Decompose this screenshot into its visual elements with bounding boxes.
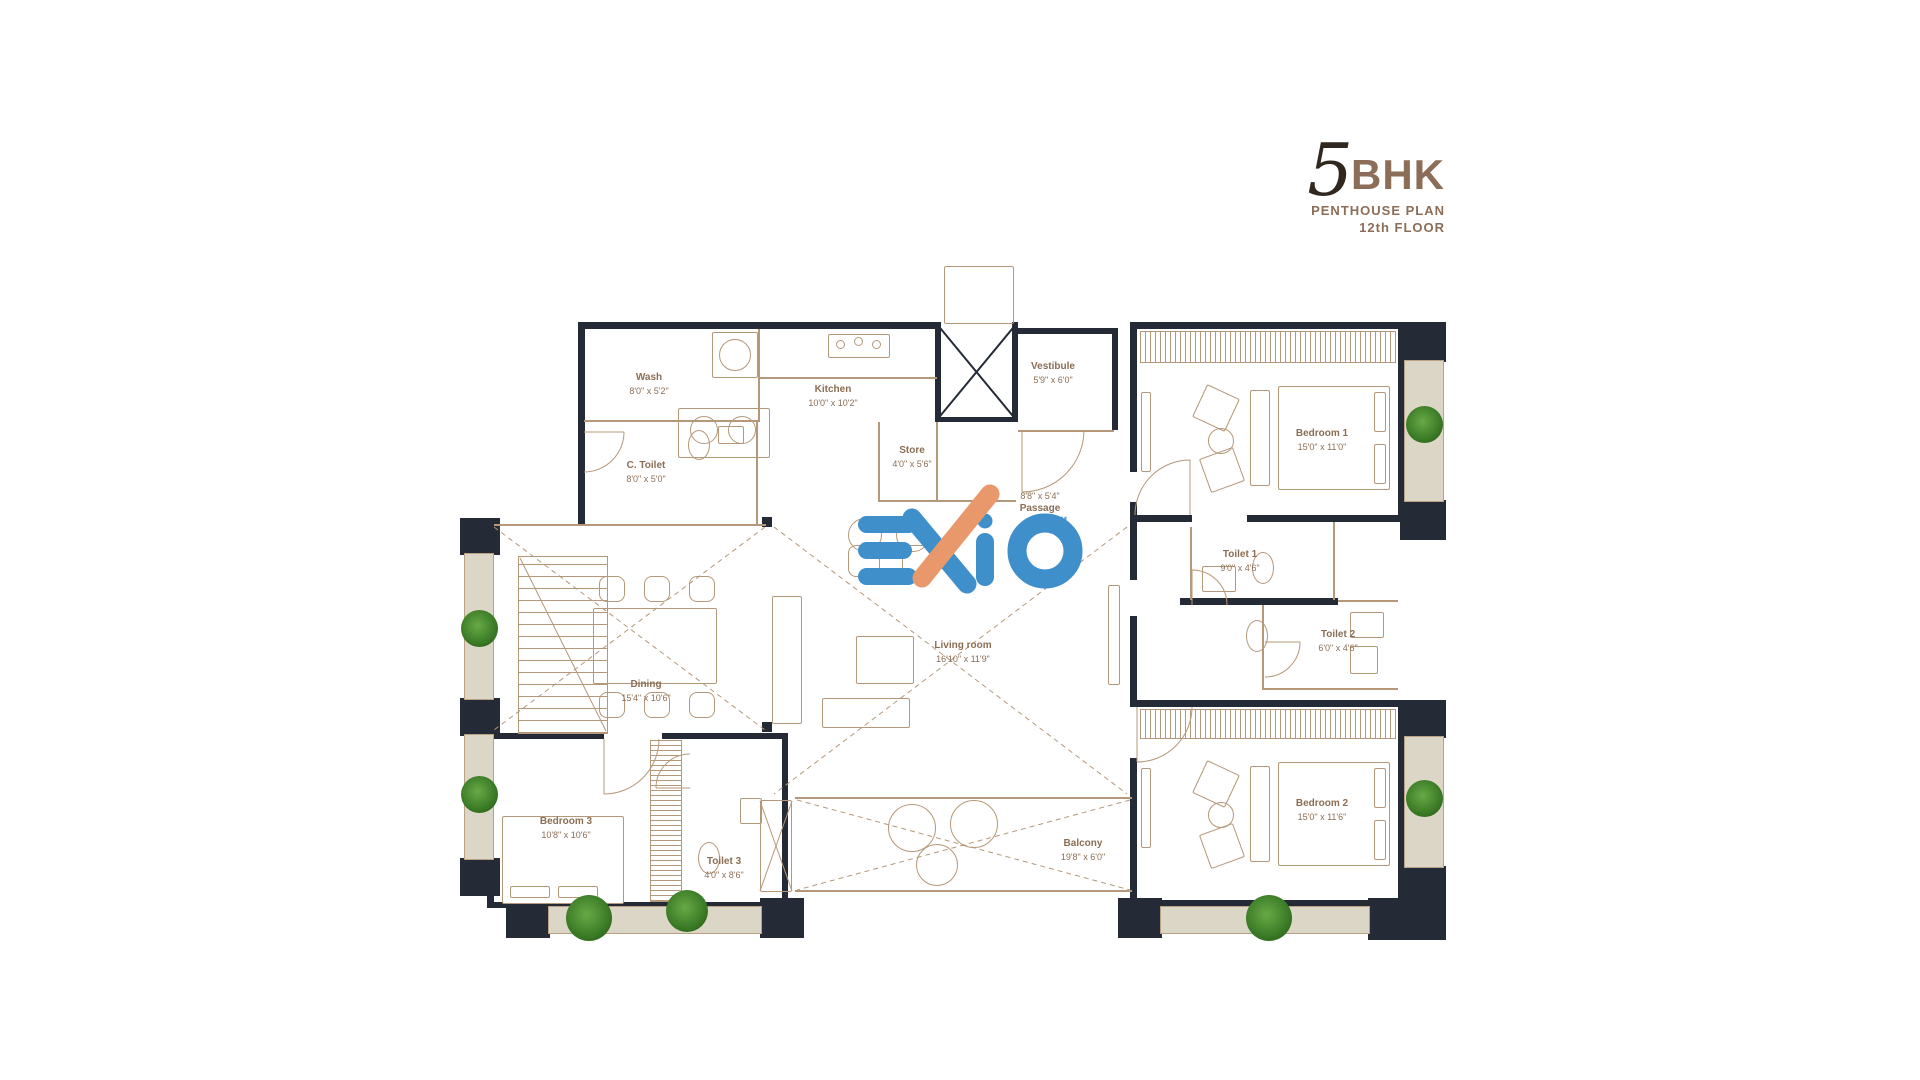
plan-title-line1: PENTHOUSE PLAN xyxy=(1300,203,1445,218)
wardrobe-hatch xyxy=(650,740,682,902)
room-dims: 15'4" x 10'6" xyxy=(621,692,670,704)
wall xyxy=(662,733,788,739)
wall xyxy=(935,322,941,422)
room-name: Toilet 3 xyxy=(707,856,741,867)
exio-logo: ™ xyxy=(845,483,1095,603)
partition xyxy=(1333,522,1335,600)
plant-icon xyxy=(1406,406,1443,443)
plant-icon xyxy=(666,890,708,932)
room-name: Store xyxy=(899,445,925,456)
armchair xyxy=(1199,823,1245,869)
plant-icon xyxy=(461,610,498,647)
partition xyxy=(494,524,766,526)
room-name: Wash xyxy=(636,372,662,383)
room-label-toilet-1: Toilet 19'0" x 4'6" xyxy=(1220,548,1259,574)
partition xyxy=(1338,600,1398,602)
plan-title-number: 5 xyxy=(1307,128,1351,212)
column xyxy=(1400,700,1446,738)
room-label-bedroom-1: Bedroom 115'0" x 11'0" xyxy=(1296,427,1348,453)
room-name: Toilet 2 xyxy=(1321,629,1355,640)
room-dims: 5'9" x 6'0" xyxy=(1031,374,1075,386)
burner xyxy=(872,340,881,349)
column xyxy=(1400,500,1446,540)
wall xyxy=(935,417,1018,422)
pillow xyxy=(1374,444,1386,484)
wc xyxy=(1246,620,1268,652)
bench xyxy=(1250,766,1270,862)
room-dims: 9'0" x 4'6" xyxy=(1220,562,1259,574)
planter xyxy=(950,800,998,848)
armchair xyxy=(1192,760,1240,808)
room-dims: 4'0" x 8'6" xyxy=(704,869,743,881)
partition xyxy=(795,890,1132,892)
wall xyxy=(1112,334,1118,430)
burner xyxy=(836,340,845,349)
wc xyxy=(688,430,710,460)
armchair xyxy=(1192,384,1240,432)
room-name: Toilet 1 xyxy=(1223,549,1257,560)
shaft-x-brace xyxy=(936,323,1017,421)
wall xyxy=(1130,758,1137,907)
pillow xyxy=(1374,820,1386,860)
room-label-bedroom-2: Bedroom 215'0" x 11'6" xyxy=(1296,797,1348,823)
room-dims: 8'0" x 5'2" xyxy=(629,385,668,397)
room-name: Bedroom 3 xyxy=(540,816,592,827)
wall xyxy=(1130,616,1137,707)
pillow xyxy=(510,886,550,898)
room-label-toilet-2: Toilet 26'0" x 4'6" xyxy=(1318,628,1357,654)
o-ring xyxy=(1017,523,1073,579)
room-name: Vestibule xyxy=(1031,361,1075,372)
partition xyxy=(1262,688,1398,690)
room-dims: 19'8" x 6'0" xyxy=(1061,851,1105,863)
column xyxy=(460,698,500,736)
room-label-dining: Dining15'4" x 10'6" xyxy=(621,678,670,704)
room-name: Living room xyxy=(934,640,991,651)
room-name: Kitchen xyxy=(815,384,852,395)
room-dims: 15'0" x 11'6" xyxy=(1296,811,1348,823)
column xyxy=(506,898,550,938)
plan-title-line2: 12th FLOOR xyxy=(1300,220,1445,235)
column xyxy=(460,858,500,896)
tv-panel xyxy=(1141,392,1151,472)
wall xyxy=(1012,328,1118,334)
plan-title-main: 5BHK xyxy=(1300,140,1445,201)
wall xyxy=(578,322,938,329)
partition xyxy=(795,797,1132,799)
room-dims: 8'0" x 5'0" xyxy=(626,473,665,485)
wall xyxy=(1247,515,1405,522)
room-name: C. Toilet xyxy=(627,460,666,471)
wall xyxy=(1012,322,1018,422)
wall xyxy=(1130,522,1137,580)
room-name: Dining xyxy=(630,679,661,690)
plant-icon xyxy=(461,776,498,813)
burner xyxy=(854,337,863,346)
pillow xyxy=(1374,768,1386,808)
column xyxy=(760,898,804,938)
wall xyxy=(1130,515,1192,522)
coffee-table xyxy=(856,636,914,684)
room-label-wash: Wash8'0" x 5'2" xyxy=(629,371,668,397)
sofa xyxy=(772,596,802,724)
room-dims: 10'8" x 10'6" xyxy=(540,829,592,841)
room-dims: 15'0" x 11'0" xyxy=(1296,441,1348,453)
tm-mark: ™ xyxy=(1056,514,1068,528)
wall xyxy=(1130,329,1137,472)
chair xyxy=(689,576,715,602)
dining-table xyxy=(593,608,717,684)
washing-machine-drum xyxy=(719,339,751,371)
plant-icon xyxy=(1246,895,1292,941)
wash-basin xyxy=(740,798,762,824)
floor-plan-page: Wash8'0" x 5'2" Kitchen10'0" x 10'2" Sto… xyxy=(0,0,1920,1080)
room-name: Bedroom 2 xyxy=(1296,798,1348,809)
chair xyxy=(644,576,670,602)
duct xyxy=(760,800,792,892)
room-name: Bedroom 1 xyxy=(1296,428,1348,439)
room-label-c-toilet: C. Toilet8'0" x 5'0" xyxy=(626,459,665,485)
room-dims: 4'0" x 5'6" xyxy=(892,458,931,470)
wall xyxy=(1130,700,1405,707)
pillow xyxy=(1374,392,1386,432)
room-dims: 6'0" x 4'6" xyxy=(1318,642,1357,654)
stairs xyxy=(518,556,608,734)
partition xyxy=(760,377,937,379)
room-label-toilet-3: Toilet 34'0" x 8'6" xyxy=(704,855,743,881)
wall xyxy=(1130,322,1405,329)
column xyxy=(1118,898,1162,938)
room-label-vestibule: Vestibule5'9" x 6'0" xyxy=(1031,360,1075,386)
column xyxy=(1368,898,1446,940)
tv-unit xyxy=(1108,585,1120,685)
plan-title-suffix: BHK xyxy=(1351,151,1445,198)
chair xyxy=(689,692,715,718)
room-label-store: Store4'0" x 5'6" xyxy=(892,444,931,470)
partition xyxy=(1190,527,1192,600)
armchair xyxy=(1199,447,1245,493)
room-name: Balcony xyxy=(1064,838,1103,849)
tv-panel xyxy=(1141,768,1151,848)
room-label-kitchen: Kitchen10'0" x 10'2" xyxy=(808,383,857,409)
plant-icon xyxy=(566,895,612,941)
room-label-bedroom-3: Bedroom 310'8" x 10'6" xyxy=(540,815,592,841)
duct-box xyxy=(944,266,1014,324)
partition xyxy=(1018,430,1114,432)
wall xyxy=(578,329,585,525)
column xyxy=(1400,322,1446,362)
room-label-balcony: Balcony19'8" x 6'0" xyxy=(1061,837,1105,863)
bench xyxy=(1250,390,1270,486)
wardrobe-hatch xyxy=(1140,709,1396,739)
column xyxy=(762,722,772,732)
plant-icon xyxy=(1406,780,1443,817)
room-label-living-room: Living room16'10" x 11'9" xyxy=(934,639,991,665)
wash-basin xyxy=(718,426,744,444)
wardrobe-hatch xyxy=(1140,331,1396,363)
wall xyxy=(1180,598,1338,605)
room-dims: 10'0" x 10'2" xyxy=(808,397,857,409)
tv-bench xyxy=(822,698,910,728)
plan-title: 5BHK PENTHOUSE PLAN 12th FLOOR xyxy=(1300,140,1445,235)
planter xyxy=(916,844,958,886)
room-dims: 16'10" x 11'9" xyxy=(934,653,991,665)
